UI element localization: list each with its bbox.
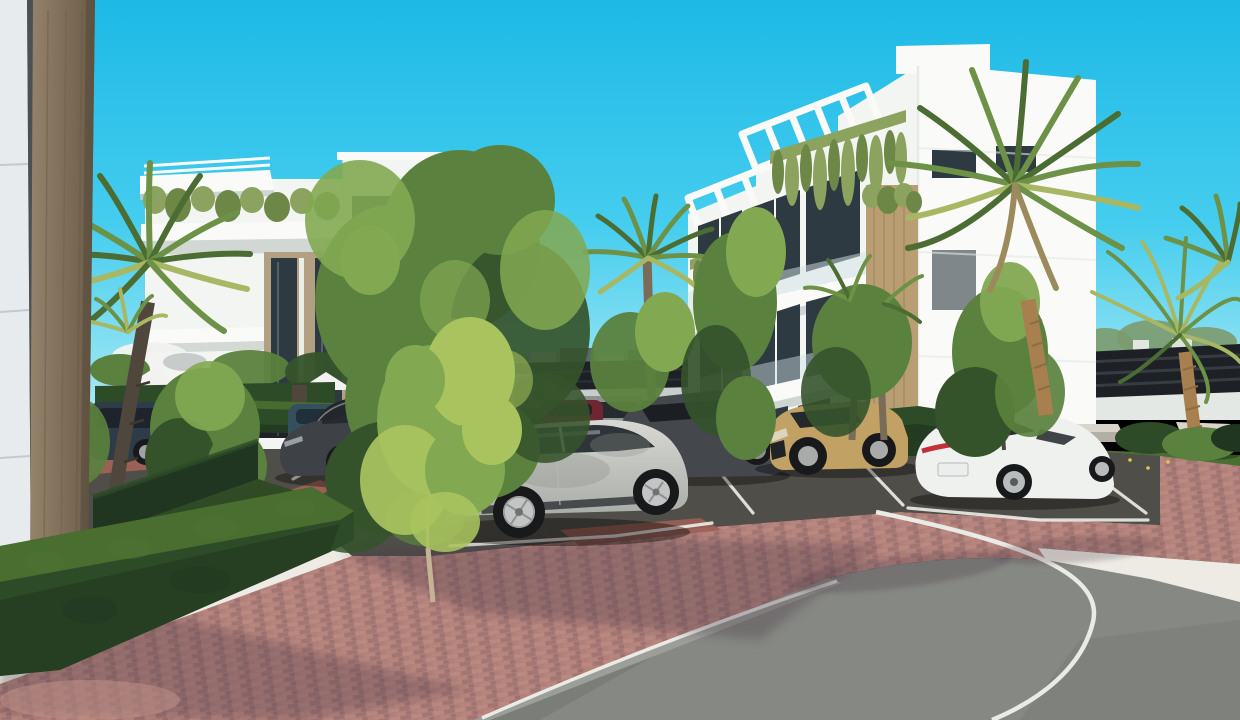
right-boundary-fence: [1077, 320, 1240, 420]
license-plate: [938, 463, 968, 476]
scene-svg: [0, 0, 1240, 720]
render-canvas: [0, 0, 1240, 720]
foreground-wall: [0, 0, 95, 580]
